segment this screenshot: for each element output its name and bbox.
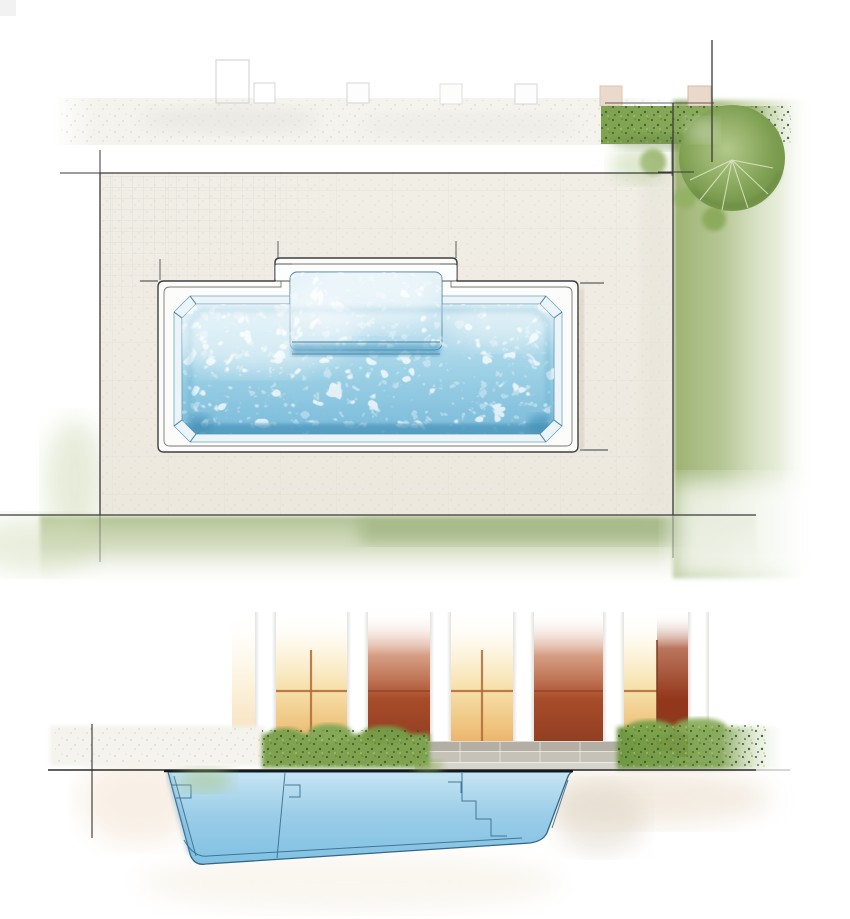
illustration-canvas xyxy=(0,0,850,919)
column-square xyxy=(347,83,369,103)
corner-registration-square xyxy=(0,0,16,16)
section-view xyxy=(48,612,790,910)
gravel-strip xyxy=(52,98,670,145)
gravel-band xyxy=(50,726,265,766)
pool-illustration xyxy=(0,0,850,919)
grass-tuft xyxy=(412,760,444,772)
pool-plan xyxy=(150,258,584,455)
plan-view xyxy=(0,0,815,588)
hedge-left xyxy=(262,724,430,768)
shrub xyxy=(702,207,726,231)
hedge-right xyxy=(617,718,782,769)
pool-section xyxy=(164,760,573,864)
step-tread xyxy=(420,741,620,751)
column-square xyxy=(515,84,537,104)
column-outline xyxy=(216,60,249,103)
column-square xyxy=(254,83,275,103)
shelf-tab-left xyxy=(275,264,292,281)
tree xyxy=(679,105,785,211)
pillar xyxy=(430,612,451,757)
pillar xyxy=(513,612,534,757)
column-square xyxy=(440,84,462,104)
grass-overhang xyxy=(177,768,233,792)
shelf-tab-right xyxy=(440,264,457,281)
wall-panel xyxy=(534,612,603,757)
